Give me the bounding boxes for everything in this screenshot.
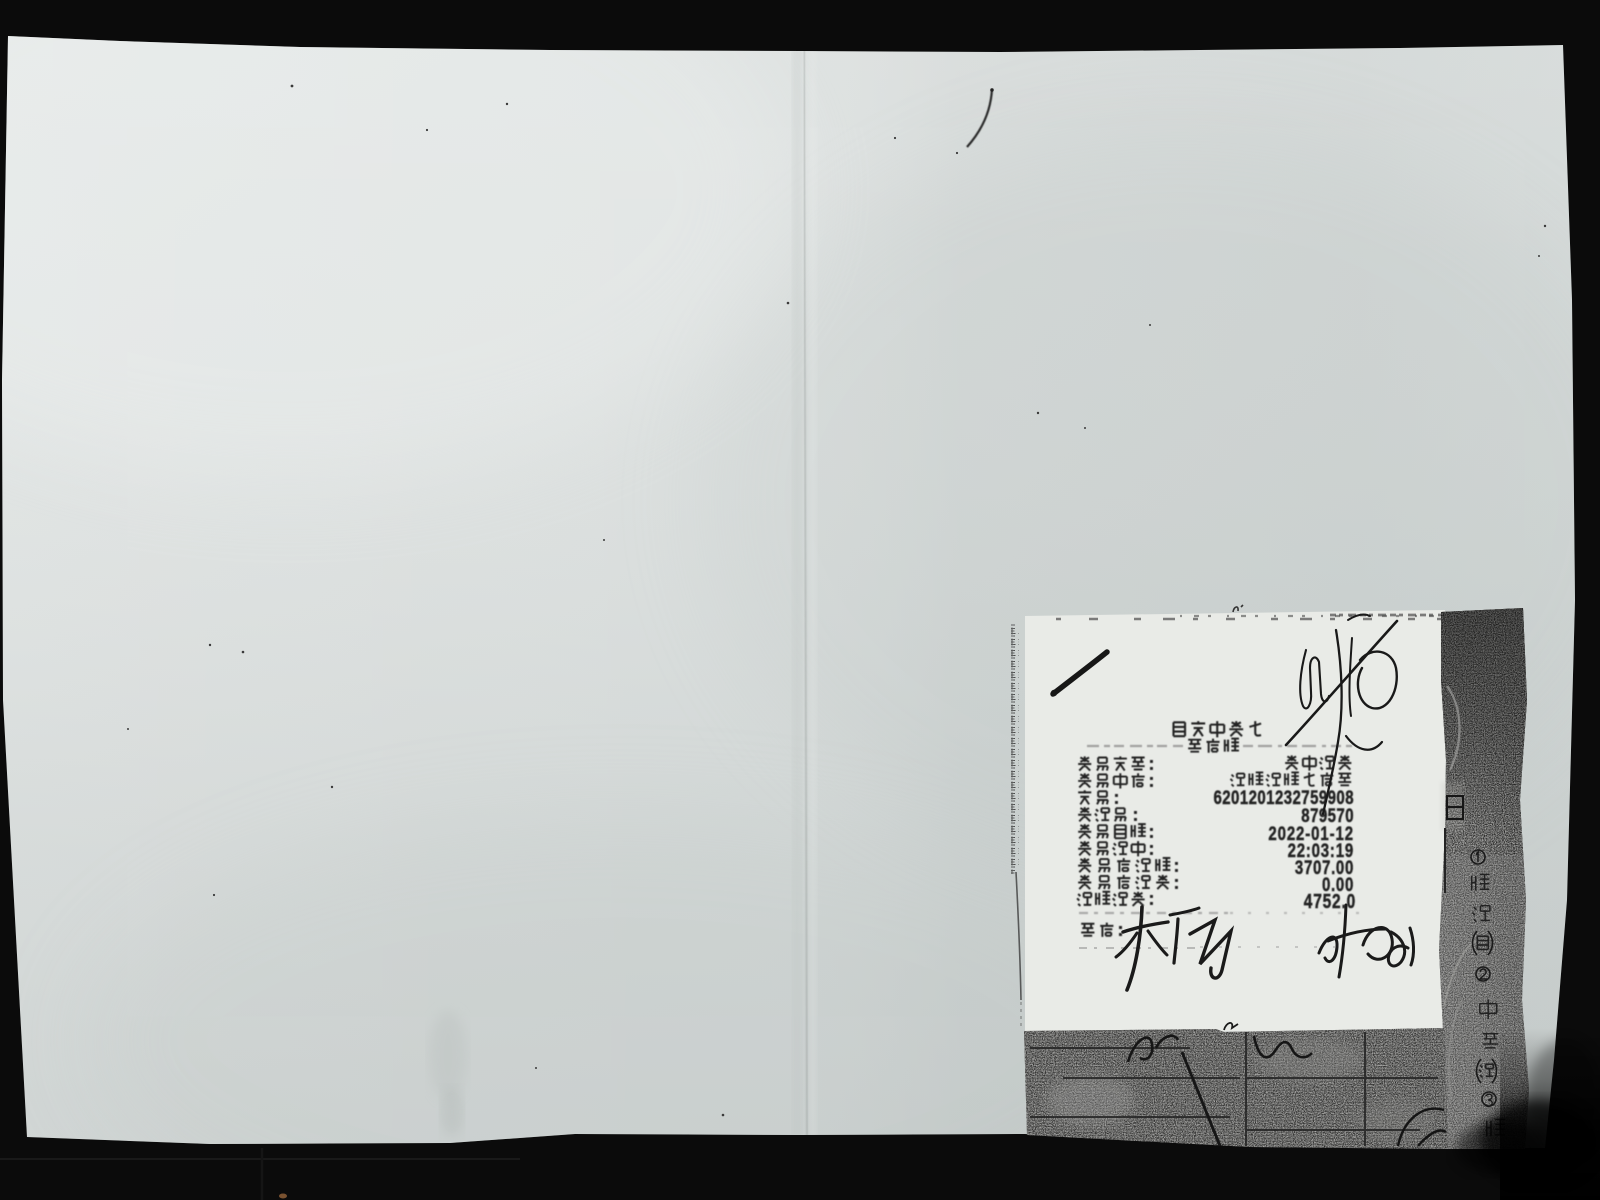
- svg-text:4752.0: 4752.0: [1304, 890, 1356, 912]
